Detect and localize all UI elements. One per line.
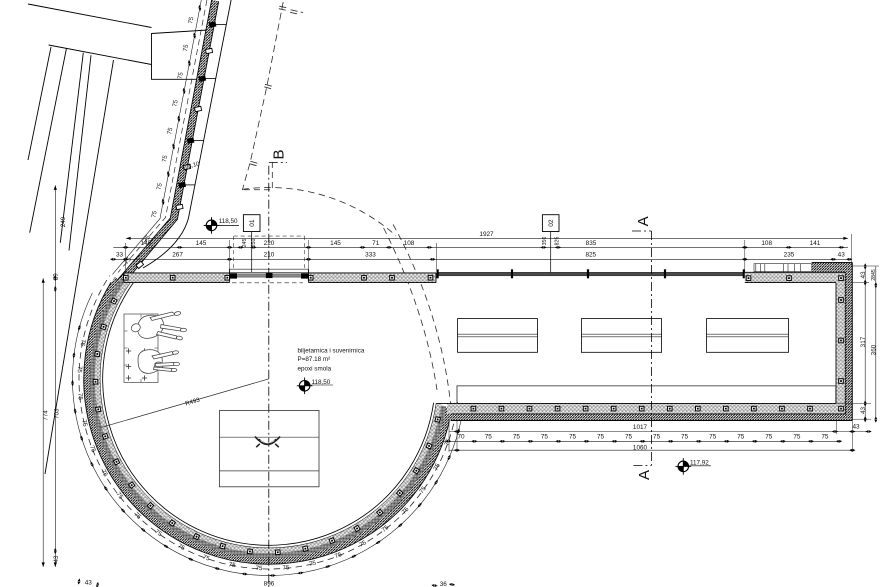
svg-text:75: 75 bbox=[569, 434, 577, 441]
svg-text:75: 75 bbox=[625, 434, 633, 441]
svg-text:774: 774 bbox=[43, 410, 50, 421]
svg-text:75: 75 bbox=[597, 434, 605, 441]
svg-text:75: 75 bbox=[681, 434, 689, 441]
svg-text:1017: 1017 bbox=[633, 424, 648, 431]
svg-text:75: 75 bbox=[737, 434, 745, 441]
svg-text:43: 43 bbox=[85, 579, 93, 586]
svg-text:biljetarnica i suvenirnica: biljetarnica i suvenirnica bbox=[298, 347, 365, 354]
svg-text:2845: 2845 bbox=[871, 269, 877, 281]
svg-text:117,92: 117,92 bbox=[690, 459, 709, 466]
svg-text:43: 43 bbox=[838, 252, 846, 259]
svg-text:825: 825 bbox=[555, 237, 561, 246]
svg-text:43: 43 bbox=[860, 271, 867, 279]
svg-text:267: 267 bbox=[172, 252, 183, 259]
svg-text:235: 235 bbox=[784, 252, 795, 259]
svg-text:1060: 1060 bbox=[633, 444, 648, 451]
svg-text:A: A bbox=[636, 470, 653, 480]
svg-text:43: 43 bbox=[860, 407, 867, 415]
svg-text:75: 75 bbox=[255, 565, 263, 572]
svg-text:825: 825 bbox=[585, 252, 596, 259]
svg-text:703: 703 bbox=[54, 408, 61, 419]
svg-text:835: 835 bbox=[586, 240, 597, 247]
svg-text:75: 75 bbox=[76, 366, 83, 374]
svg-text:75: 75 bbox=[485, 434, 493, 441]
svg-text:75: 75 bbox=[541, 434, 549, 441]
svg-text:145: 145 bbox=[330, 240, 341, 247]
svg-text:epoxi smola: epoxi smola bbox=[298, 366, 332, 373]
svg-text:01: 01 bbox=[249, 219, 256, 227]
svg-text:43: 43 bbox=[852, 424, 860, 431]
svg-text:108: 108 bbox=[404, 240, 415, 247]
svg-text:245: 245 bbox=[242, 239, 248, 248]
svg-text:1927: 1927 bbox=[479, 231, 494, 238]
svg-text:75: 75 bbox=[282, 564, 290, 572]
svg-text:220: 220 bbox=[264, 240, 275, 247]
svg-text:75: 75 bbox=[793, 434, 801, 441]
svg-text:29: 29 bbox=[53, 273, 60, 280]
svg-text:A: A bbox=[635, 216, 652, 226]
svg-text:71: 71 bbox=[372, 240, 380, 247]
svg-text:B: B bbox=[271, 149, 288, 159]
svg-text:02: 02 bbox=[548, 219, 555, 227]
svg-text:36: 36 bbox=[440, 581, 448, 587]
svg-text:P=87.18 m²: P=87.18 m² bbox=[298, 356, 331, 363]
svg-text:141: 141 bbox=[810, 240, 821, 247]
svg-text:145: 145 bbox=[141, 240, 152, 247]
svg-text:350: 350 bbox=[542, 237, 548, 246]
svg-text:145: 145 bbox=[196, 240, 207, 247]
svg-text:896: 896 bbox=[264, 580, 275, 587]
svg-text:249: 249 bbox=[60, 216, 67, 227]
svg-text:108: 108 bbox=[761, 240, 772, 247]
svg-text:210: 210 bbox=[264, 252, 275, 259]
svg-text:75: 75 bbox=[653, 434, 661, 441]
svg-text:317: 317 bbox=[860, 336, 867, 347]
svg-text:43: 43 bbox=[53, 555, 60, 562]
svg-text:333: 333 bbox=[365, 252, 376, 259]
svg-text:75: 75 bbox=[821, 434, 829, 441]
svg-text:75: 75 bbox=[709, 434, 717, 441]
svg-text:75: 75 bbox=[765, 434, 773, 441]
svg-text:33: 33 bbox=[116, 252, 124, 259]
svg-text:118,50: 118,50 bbox=[219, 218, 238, 225]
svg-text:70: 70 bbox=[457, 434, 465, 441]
svg-text:75: 75 bbox=[76, 393, 84, 401]
svg-text:75: 75 bbox=[513, 434, 521, 441]
svg-text:360: 360 bbox=[870, 344, 877, 355]
